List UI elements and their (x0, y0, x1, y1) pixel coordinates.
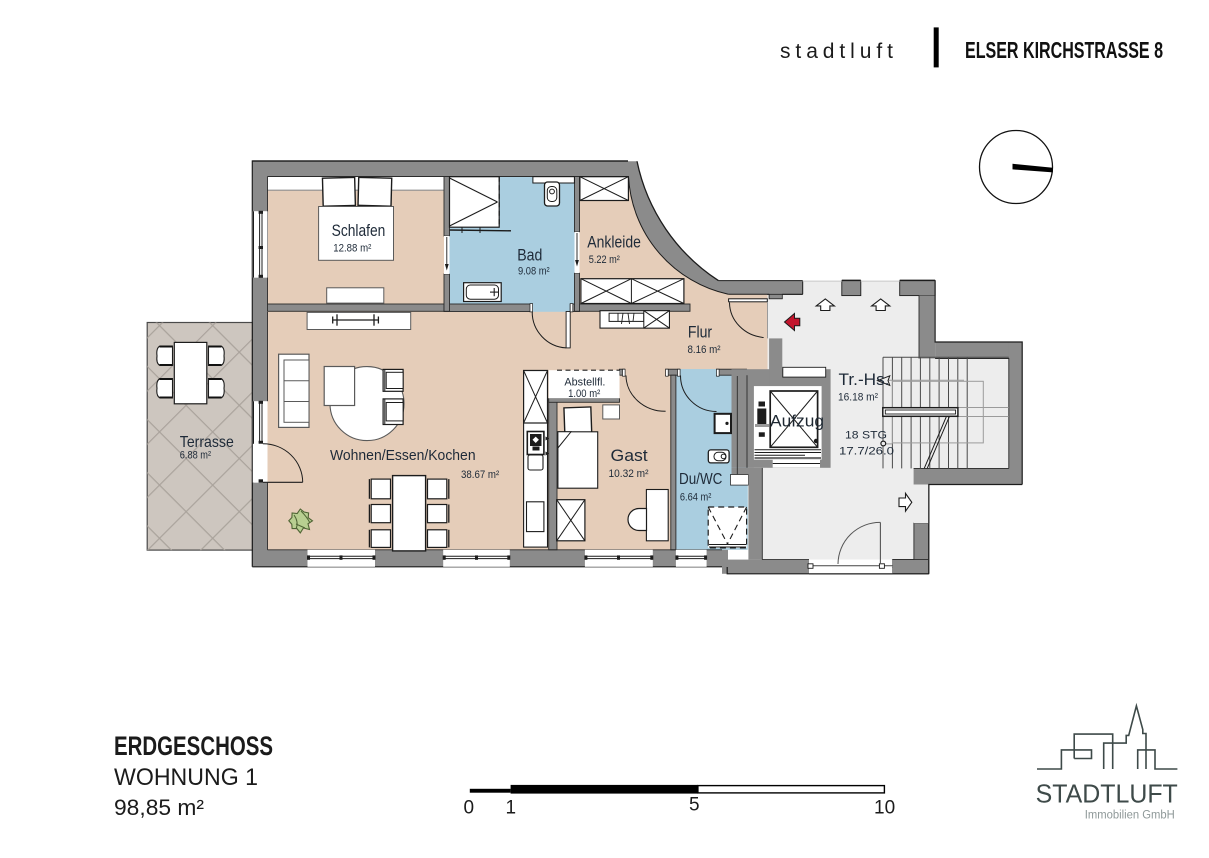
svg-text:Wohnen/Essen/Kochen: Wohnen/Essen/Kochen (330, 447, 476, 464)
svg-text:STADTLUFT: STADTLUFT (1036, 781, 1178, 809)
svg-text:10: 10 (874, 798, 895, 819)
svg-text:ELSER KIRCHSTRASSE 8: ELSER KIRCHSTRASSE 8 (965, 37, 1163, 63)
svg-text:6.88 m²: 6.88 m² (180, 450, 212, 462)
svg-text:Immobilien GmbH: Immobilien GmbH (1085, 810, 1175, 822)
svg-text:1: 1 (506, 798, 517, 819)
svg-text:5.22 m²: 5.22 m² (589, 254, 620, 266)
svg-text:Tr.-Hs.: Tr.-Hs. (839, 370, 890, 389)
svg-text:18 STG: 18 STG (845, 430, 887, 442)
svg-text:5: 5 (689, 795, 700, 816)
svg-text:9.08 m²: 9.08 m² (518, 265, 550, 277)
svg-text:38.67 m²: 38.67 m² (461, 469, 499, 481)
svg-text:Gast: Gast (611, 446, 648, 465)
svg-text:17.7/26.0: 17.7/26.0 (839, 446, 894, 458)
svg-text:1.00 m²: 1.00 m² (568, 388, 600, 400)
svg-text:ERDGESCHOSS: ERDGESCHOSS (114, 731, 273, 761)
svg-text:16.18 m²: 16.18 m² (838, 392, 878, 404)
svg-text:stadtluft: stadtluft (780, 40, 896, 63)
svg-text:12.88 m²: 12.88 m² (333, 242, 371, 254)
svg-text:Terrasse: Terrasse (180, 434, 234, 451)
svg-text:Aufzug: Aufzug (770, 413, 824, 431)
svg-text:10.32 m²: 10.32 m² (609, 468, 649, 480)
svg-text:Flur: Flur (688, 324, 713, 342)
svg-text:98,85 m²: 98,85 m² (114, 795, 204, 820)
svg-text:0: 0 (464, 798, 475, 819)
svg-text:Schlafen: Schlafen (332, 221, 386, 240)
svg-text:Du/WC: Du/WC (679, 471, 722, 488)
svg-text:Ankleide: Ankleide (587, 232, 641, 251)
svg-text:WOHNUNG 1: WOHNUNG 1 (114, 765, 258, 791)
svg-text:Abstellfl.: Abstellfl. (564, 377, 605, 389)
svg-text:Bad: Bad (517, 246, 542, 265)
svg-text:6.64 m²: 6.64 m² (680, 491, 712, 503)
svg-text:8.16 m²: 8.16 m² (687, 344, 720, 356)
